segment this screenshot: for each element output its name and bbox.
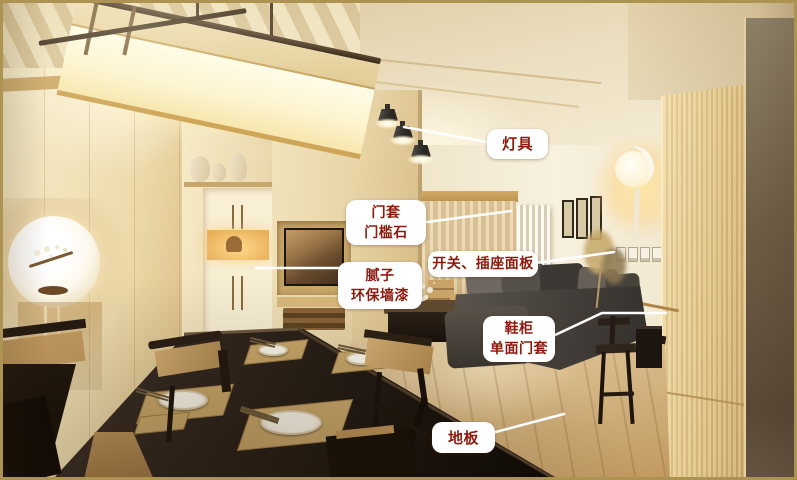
annotation-putty-line1: 腻子 xyxy=(338,266,422,286)
callout-line-floor xyxy=(492,414,564,433)
annotation-floor: 地板 xyxy=(432,422,495,453)
callout-line-lamp xyxy=(404,127,487,142)
annotated-room-photo: 灯具 门套 门槛石 腻子 环保墙漆 开关、插座面板 鞋柜 单面门套 地板 xyxy=(0,0,797,480)
annotation-putty-line2: 环保墙漆 xyxy=(338,286,422,306)
annotation-door-casing-line1: 门套 xyxy=(346,203,426,223)
annotation-door-casing: 门套 门槛石 xyxy=(346,200,426,245)
annotation-putty-paint: 腻子 环保墙漆 xyxy=(338,262,422,309)
annotation-shoe-cabinet-line2: 单面门套 xyxy=(483,339,555,359)
annotation-switch-socket-text: 开关、插座面板 xyxy=(428,254,538,274)
callout-line-shoe-cabinet xyxy=(553,313,666,336)
annotation-shoe-cabinet-line1: 鞋柜 xyxy=(483,319,555,339)
annotation-lamp-text: 灯具 xyxy=(487,134,548,154)
annotation-switch-socket: 开关、插座面板 xyxy=(428,251,538,277)
annotation-shoe-cabinet: 鞋柜 单面门套 xyxy=(483,316,555,362)
annotation-floor-text: 地板 xyxy=(432,428,495,448)
annotation-door-casing-line2: 门槛石 xyxy=(346,223,426,243)
callout-line-switch xyxy=(536,252,614,263)
callout-line-door-casing xyxy=(427,211,511,222)
annotation-lamp: 灯具 xyxy=(487,129,548,159)
